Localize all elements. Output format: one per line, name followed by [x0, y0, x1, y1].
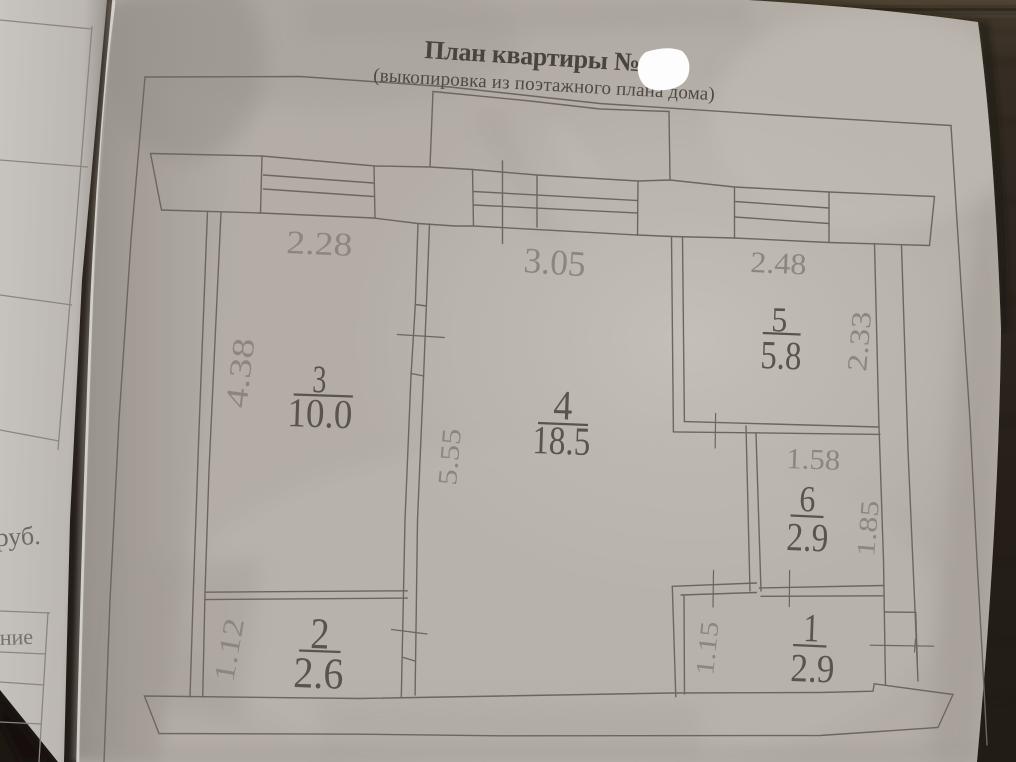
svg-text:руб.: руб.	[0, 521, 41, 552]
svg-text:ние: ние	[0, 624, 33, 650]
svg-text:1: 1	[803, 605, 821, 651]
svg-text:2.6: 2.6	[293, 648, 345, 699]
svg-text:3.05: 3.05	[522, 240, 587, 284]
svg-text:1.85: 1.85	[851, 499, 885, 557]
svg-text:1.15: 1.15	[690, 620, 724, 677]
svg-text:2.48: 2.48	[750, 246, 807, 281]
svg-text:2.9: 2.9	[790, 645, 836, 692]
svg-text:5.8: 5.8	[760, 332, 803, 378]
svg-text:2.33: 2.33	[842, 310, 878, 372]
svg-text:2.28: 2.28	[286, 225, 354, 264]
svg-text:5.55: 5.55	[432, 427, 467, 486]
svg-text:10.0: 10.0	[287, 389, 354, 437]
svg-text:18.5: 18.5	[532, 417, 592, 464]
svg-text:2.9: 2.9	[786, 514, 830, 560]
svg-text:1.58: 1.58	[786, 443, 841, 477]
